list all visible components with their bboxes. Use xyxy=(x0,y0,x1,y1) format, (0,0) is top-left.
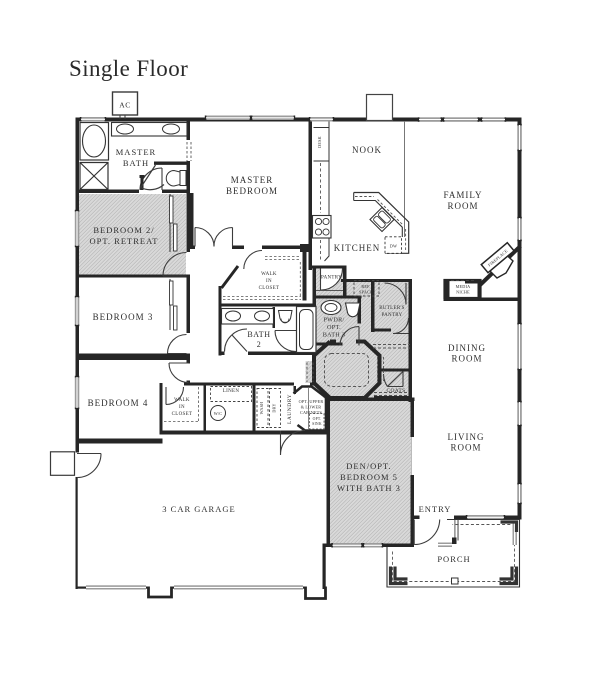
svg-text:OPT.: OPT. xyxy=(327,324,341,331)
svg-text:REF.: REF. xyxy=(361,284,370,289)
svg-text:PORCH: PORCH xyxy=(437,554,470,564)
svg-text:LIVING: LIVING xyxy=(448,432,485,442)
svg-text:DW: DW xyxy=(390,244,397,249)
svg-text:OPT. RETREAT: OPT. RETREAT xyxy=(90,236,159,246)
svg-text:BATH: BATH xyxy=(247,330,270,339)
svg-text:& LOWER: & LOWER xyxy=(301,405,322,410)
svg-text:SINK: SINK xyxy=(312,422,322,426)
svg-text:OPT.: OPT. xyxy=(313,417,322,421)
svg-text:ROOM: ROOM xyxy=(451,354,482,364)
svg-text:ROOM: ROOM xyxy=(447,201,478,211)
svg-text:KITCHEN: KITCHEN xyxy=(334,243,381,253)
svg-text:MASTER: MASTER xyxy=(231,175,274,185)
svg-text:ENTRY: ENTRY xyxy=(419,504,452,514)
svg-text:W/C: W/C xyxy=(214,411,223,416)
svg-text:FAMILY: FAMILY xyxy=(444,190,483,200)
svg-text:SPACE: SPACE xyxy=(359,290,373,295)
svg-text:WASH: WASH xyxy=(259,402,264,415)
svg-text:WALK: WALK xyxy=(261,272,277,277)
svg-text:BEDROOM 3: BEDROOM 3 xyxy=(93,312,154,322)
svg-text:COATS: COATS xyxy=(387,388,406,394)
svg-text:DINING: DINING xyxy=(448,343,486,353)
svg-text:LINEN: LINEN xyxy=(223,389,240,394)
svg-text:CLOSET: CLOSET xyxy=(259,286,280,291)
svg-text:WALK: WALK xyxy=(174,398,190,403)
svg-text:CABINETS: CABINETS xyxy=(300,410,323,415)
svg-text:DEN/OPT.: DEN/OPT. xyxy=(346,461,391,471)
svg-text:PWDR/: PWDR/ xyxy=(323,317,344,324)
svg-text:Single Floor: Single Floor xyxy=(69,56,188,81)
svg-text:OPT. UPPER: OPT. UPPER xyxy=(299,399,324,404)
svg-text:WITH BATH 3: WITH BATH 3 xyxy=(337,483,401,493)
svg-text:2: 2 xyxy=(257,340,262,349)
svg-text:PANTRY: PANTRY xyxy=(321,276,342,281)
svg-text:BEDROOM 4: BEDROOM 4 xyxy=(88,398,149,408)
svg-text:CLOSET: CLOSET xyxy=(172,412,193,417)
svg-text:DRY: DRY xyxy=(272,403,277,412)
svg-text:BEDROOM 5: BEDROOM 5 xyxy=(340,472,398,482)
svg-text:BUTLER'S: BUTLER'S xyxy=(379,306,405,311)
svg-text:DESK: DESK xyxy=(317,136,322,148)
svg-text:BATH: BATH xyxy=(123,158,149,168)
svg-text:NOOK: NOOK xyxy=(352,145,382,155)
svg-text:IN: IN xyxy=(266,279,272,284)
svg-text:MEDIA: MEDIA xyxy=(456,284,471,289)
svg-text:BEDROOM 2/: BEDROOM 2/ xyxy=(93,225,154,235)
svg-text:PANTRY: PANTRY xyxy=(381,313,402,318)
svg-text:LAUNDRY: LAUNDRY xyxy=(287,394,293,424)
svg-text:BATH 3: BATH 3 xyxy=(323,332,346,339)
svg-text:BEDROOM: BEDROOM xyxy=(226,186,278,196)
svg-text:NICHE: NICHE xyxy=(456,290,470,295)
svg-text:IN: IN xyxy=(179,405,185,410)
svg-text:3 CAR GARAGE: 3 CAR GARAGE xyxy=(162,504,235,514)
svg-text:MASTER: MASTER xyxy=(116,147,156,157)
svg-text:AC: AC xyxy=(119,101,131,110)
svg-text:ROOM: ROOM xyxy=(450,443,481,453)
